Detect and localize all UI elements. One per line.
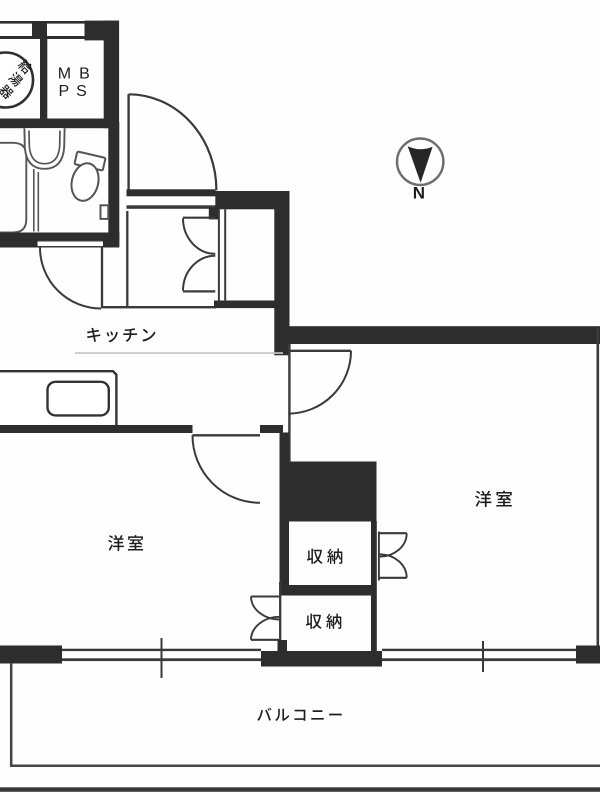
svg-text:N: N [413,184,425,203]
svg-text:MB: MB [58,66,98,83]
svg-text:PS: PS [59,83,94,100]
